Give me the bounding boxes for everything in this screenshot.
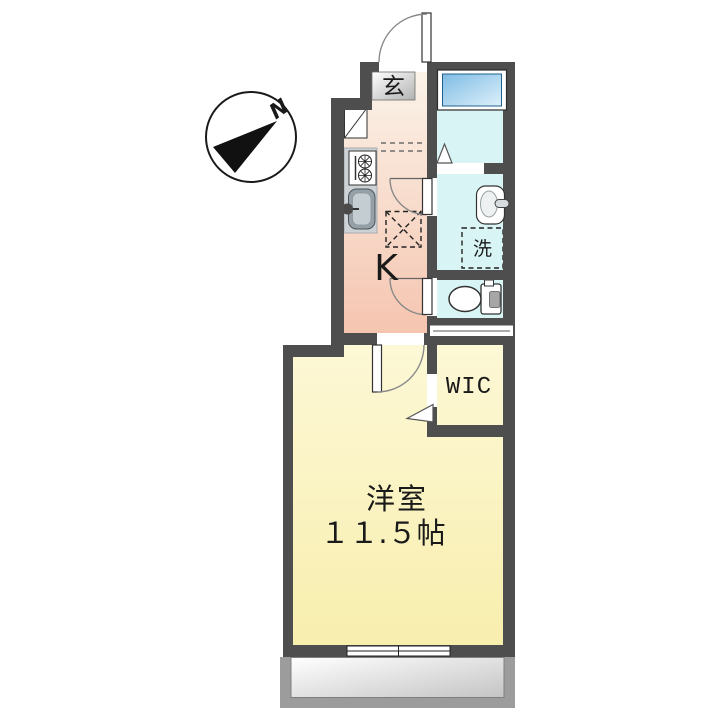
bathtub-icon: [443, 74, 502, 106]
main-room-size-label: １１.５帖: [320, 516, 445, 550]
wall-segment: [503, 62, 515, 437]
compass: N: [206, 92, 296, 182]
entrance-door-leaf: [422, 13, 431, 62]
wall-segment: [484, 163, 515, 174]
floorplan-page: N 玄 K 洗 WIC 洋室 １１.５帖: [0, 0, 720, 720]
washroom-door-leaf: [423, 179, 433, 215]
wic-label: WIC: [446, 374, 492, 401]
wall-segment: [503, 437, 515, 657]
floors: [293, 72, 504, 645]
laundry-label: 洗: [473, 238, 492, 260]
entrance-label: 玄: [382, 74, 405, 100]
room-door-leaf: [373, 345, 382, 392]
entrance-doorway: [379, 62, 427, 72]
wic-doorway: [427, 374, 437, 407]
floorplan-drawing: N 玄 K 洗 WIC 洋室 １１.５帖: [0, 0, 720, 720]
wall-segment: [427, 425, 515, 437]
room-doorway: [377, 333, 424, 345]
washbasin-faucet-icon: [495, 200, 509, 208]
bath-doorway: [437, 163, 484, 174]
wall-segment: [427, 270, 515, 280]
toilet-tank-pad: [490, 292, 501, 308]
toilet-door-leaf: [423, 279, 433, 315]
wall-segment: [283, 345, 293, 657]
toilet-bowl-icon: [449, 287, 481, 312]
entrance-door-arc: [379, 14, 427, 62]
kitchen-label: K: [374, 248, 399, 289]
balcony-inner: [291, 658, 504, 698]
main-room-name-label: 洋室: [366, 482, 428, 516]
toilet-pipe: [485, 280, 494, 286]
balcony: [280, 657, 515, 708]
wall-segment: [331, 98, 344, 345]
